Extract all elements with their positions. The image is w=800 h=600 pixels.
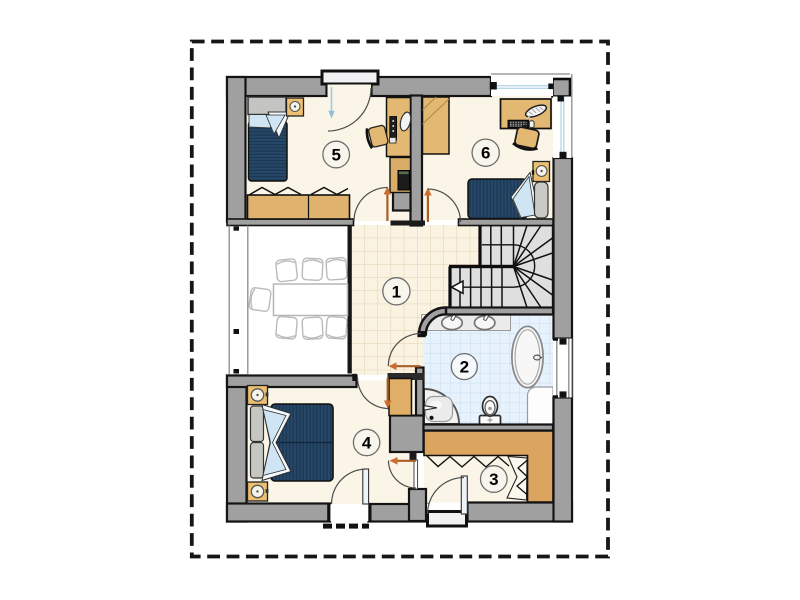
svg-text:3: 3 (489, 470, 498, 489)
svg-text:4: 4 (362, 434, 372, 453)
svg-text:5: 5 (331, 146, 340, 165)
svg-text:1: 1 (392, 282, 401, 301)
svg-text:2: 2 (460, 358, 469, 377)
svg-text:6: 6 (481, 144, 490, 163)
